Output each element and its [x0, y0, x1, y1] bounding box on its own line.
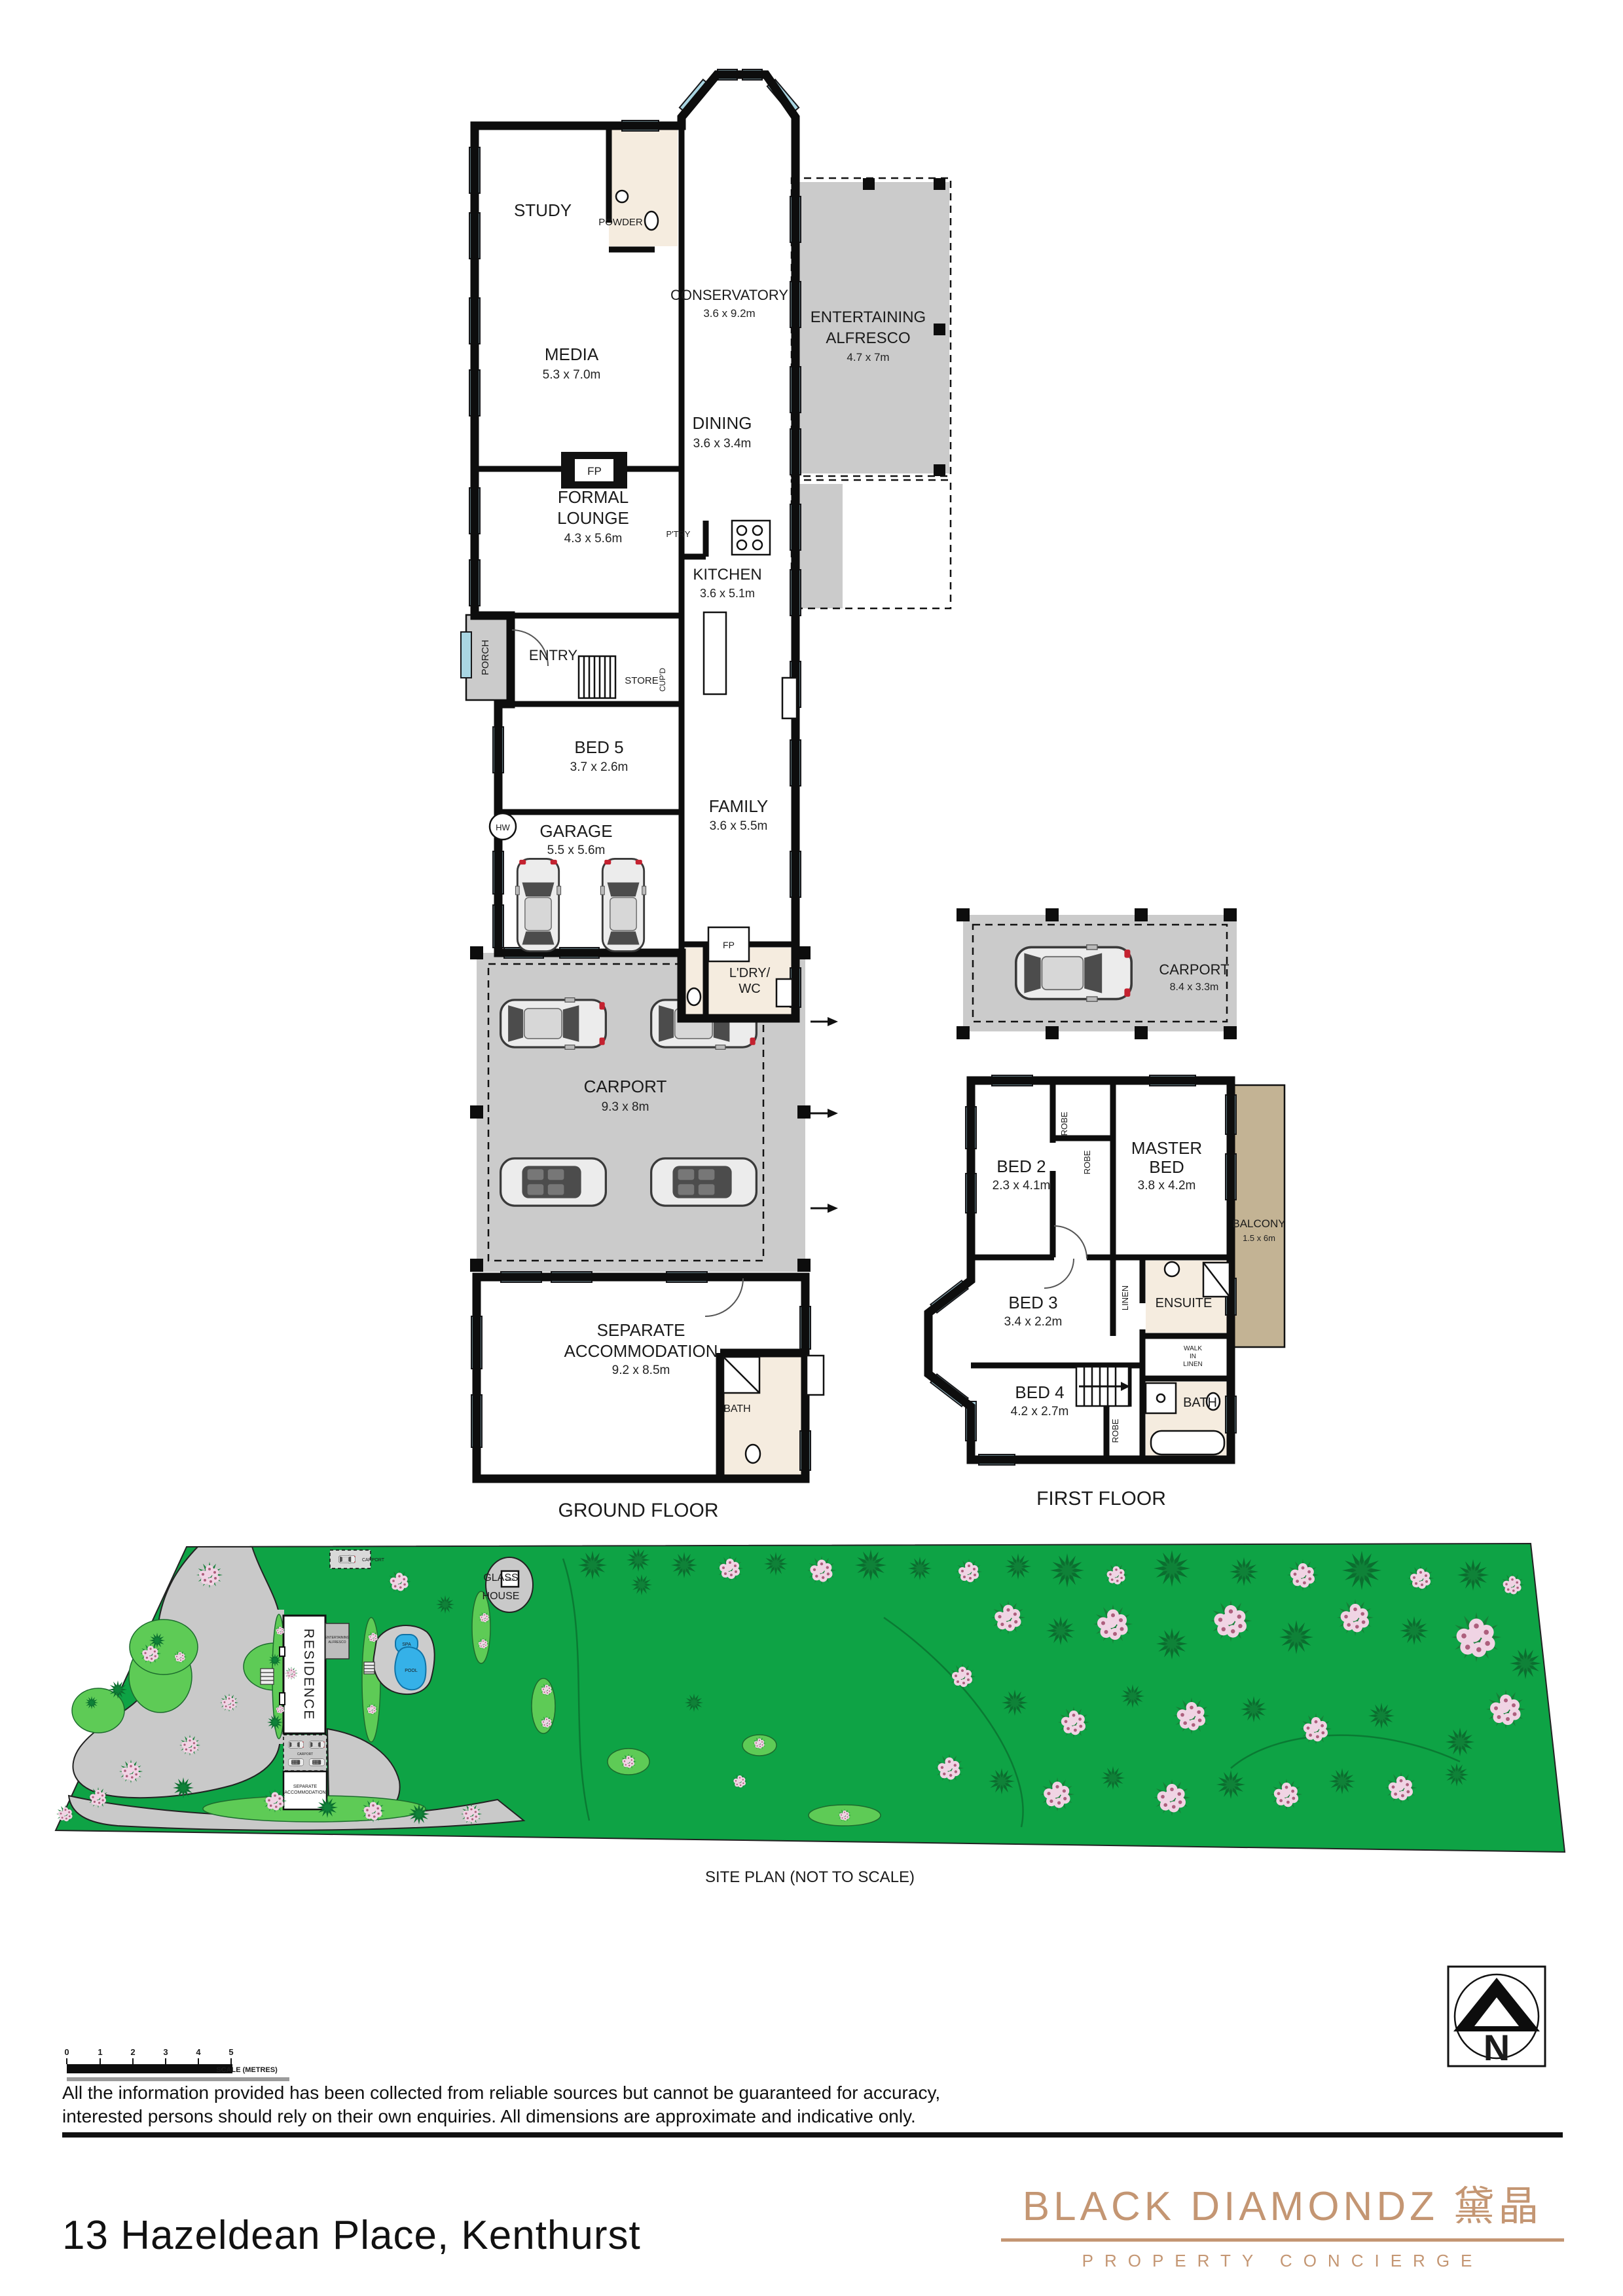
label-master-2: BED [1149, 1157, 1184, 1177]
label-linen: LINEN [1120, 1286, 1130, 1310]
label-conservatory: CONSERVATORY [670, 287, 788, 303]
label-ensuite: ENSUITE [1156, 1296, 1213, 1310]
label-garage-dims: 5.5 x 5.6m [547, 843, 606, 857]
site-label-shed: SHED [505, 1578, 515, 1582]
label-laundry-1: L'DRY/ [729, 966, 771, 980]
label-garage: GARAGE [539, 821, 612, 841]
site-plan-caption: SITE PLAN (NOT TO SCALE) [705, 1868, 915, 1886]
label-sepacc-1: SEPARATE [597, 1320, 685, 1340]
label-family: FAMILY [709, 796, 769, 816]
label-bed2-dims: 2.3 x 4.1m [993, 1179, 1051, 1193]
site-label-glass-2: HOUSE [483, 1591, 520, 1602]
label-balcony-dims: 1.5 x 6m [1243, 1233, 1275, 1243]
scale-bar: 0 1 2 3 4 5 SCALE (METRES) [64, 2047, 289, 2081]
site-label-pool: POOL [405, 1669, 418, 1673]
label-porch: PORCH [480, 640, 491, 675]
label-master-1: MASTER [1131, 1138, 1202, 1158]
label-alfresco-2: ALFRESCO [826, 329, 910, 347]
scale-tick-4: 4 [196, 2047, 201, 2057]
first-floor-caption: FIRST FLOOR [1036, 1488, 1166, 1509]
site-label-sepacc-1: SEPARATE [293, 1785, 318, 1789]
label-ff-carport-dims: 8.4 x 3.3m [1170, 982, 1219, 993]
label-family-dims: 3.6 x 5.5m [710, 819, 768, 833]
brand-underline [1001, 2238, 1564, 2242]
label-lounge-dims: 4.3 x 5.6m [564, 532, 623, 546]
label-ff-carport: CARPORT [1159, 961, 1229, 978]
scale-tick-0: 0 [64, 2047, 69, 2057]
disclaimer-line-1: All the information provided has been co… [62, 2081, 940, 2105]
brand-name: BLACK DIAMONDZ 黛晶 [1001, 2173, 1564, 2232]
label-wil-3: LINEN [1183, 1361, 1202, 1368]
label-bed5: BED 5 [574, 737, 623, 757]
label-bed2: BED 2 [996, 1157, 1046, 1176]
first-floor-carport: CARPORT 8.4 x 3.3m [957, 908, 1237, 1039]
label-conservatory-dims: 3.6 x 9.2m [703, 307, 755, 320]
label-laundry-2: WC [739, 982, 760, 996]
first-floor-plan: CARPORT 8.4 x 3.3m [928, 908, 1286, 1509]
disclaimer-line-2: interested persons should rely on their … [62, 2105, 940, 2128]
scale-tick-3: 3 [163, 2047, 168, 2057]
label-pantry: P'TRY [666, 529, 691, 539]
label-wil-2: IN [1190, 1353, 1196, 1360]
label-robe-c: ROBE [1110, 1418, 1120, 1443]
label-ground-bath: BATH [723, 1403, 750, 1415]
label-alfresco-1: ENTERTAINING [811, 308, 926, 326]
label-fp-family: FP [723, 940, 735, 950]
alfresco-area [795, 182, 949, 473]
label-sepacc-2: ACCOMMODATION [564, 1341, 718, 1361]
scale-tick-2: 2 [130, 2047, 135, 2057]
label-lounge-2: LOUNGE [557, 508, 629, 528]
label-study: STUDY [514, 200, 572, 220]
site-label-sepacc-2: ACCOMMODATION [284, 1790, 325, 1795]
label-wil-1: WALK [1184, 1345, 1202, 1352]
label-ground-carport: CARPORT [584, 1077, 667, 1096]
scale-tick-5: 5 [228, 2047, 233, 2057]
label-cupd: CUP'D [658, 668, 667, 692]
label-robe-a: ROBE [1059, 1111, 1069, 1136]
label-kitchen: KITCHEN [693, 566, 761, 583]
label-powder: POWDER [598, 217, 643, 228]
floorplan-page: STUDY POWDER MEDIA 5.3 x 7.0m CONSERVATO… [0, 0, 1623, 2296]
label-dining: DINING [693, 413, 752, 433]
brand-logo: BLACK DIAMONDZ 黛晶 PROPERTY CONCIERGE [1001, 2173, 1564, 2271]
north-arrow: N [1448, 1967, 1545, 2068]
label-master-dims: 3.8 x 4.2m [1138, 1179, 1196, 1193]
label-entry: ENTRY [529, 647, 577, 663]
label-ground-carport-dims: 9.3 x 8m [602, 1100, 649, 1114]
ground-floor-caption: GROUND FLOOR [558, 1500, 718, 1521]
label-balcony: BALCONY [1232, 1217, 1285, 1230]
scale-bar-label: SCALE (METRES) [216, 2066, 278, 2074]
label-robe-b: ROBE [1082, 1150, 1092, 1174]
label-media-dims: 5.3 x 7.0m [543, 368, 601, 382]
site-label-carport-top: CARPORT [362, 1558, 385, 1563]
property-address: 13 Hazeldean Place, Kenthurst [62, 2212, 641, 2259]
label-kitchen-dims: 3.6 x 5.1m [700, 587, 755, 600]
label-bed4: BED 4 [1015, 1382, 1064, 1402]
label-fp-media: FP [587, 465, 602, 477]
footer-divider [62, 2132, 1563, 2138]
label-ff-bath: BATH [1183, 1396, 1217, 1410]
label-media: MEDIA [545, 344, 599, 364]
brand-tagline: PROPERTY CONCIERGE [1001, 2251, 1564, 2271]
label-hw: HW [496, 823, 510, 832]
label-dining-dims: 3.6 x 3.4m [693, 437, 752, 451]
label-store: STORE [625, 675, 658, 686]
site-label-alfresco-1: ENTERTAINING [325, 1636, 350, 1640]
label-bed4-dims: 4.2 x 2.7m [1011, 1405, 1069, 1418]
site-label-alfresco-2: ALFRESCO [329, 1640, 346, 1644]
label-lounge-1: FORMAL [558, 487, 629, 507]
label-bed3: BED 3 [1008, 1293, 1057, 1312]
label-bed3-dims: 3.4 x 2.2m [1004, 1315, 1063, 1329]
site-label-residence: RESIDENCE [301, 1629, 316, 1721]
north-label: N [1484, 2027, 1510, 2068]
balcony-area [1233, 1085, 1285, 1347]
scale-tick-1: 1 [98, 2047, 102, 2057]
disclaimer: All the information provided has been co… [62, 2081, 940, 2129]
site-label-spa: SPA [402, 1642, 411, 1647]
label-bed5-dims: 3.7 x 2.6m [570, 760, 629, 774]
site-plan: GLASS HOUSE SHED CARPORT RESIDENCE ENTER… [56, 1544, 1565, 1886]
ground-floor-plan: STUDY POWDER MEDIA 5.3 x 7.0m CONSERVATO… [461, 69, 951, 1521]
label-sepacc-dims: 9.2 x 8.5m [612, 1363, 670, 1377]
site-label-carport-mid: CARPORT [297, 1752, 313, 1756]
plan-graphics: STUDY POWDER MEDIA 5.3 x 7.0m CONSERVATO… [0, 0, 1623, 2296]
label-alfresco-dims: 4.7 x 7m [847, 351, 889, 363]
